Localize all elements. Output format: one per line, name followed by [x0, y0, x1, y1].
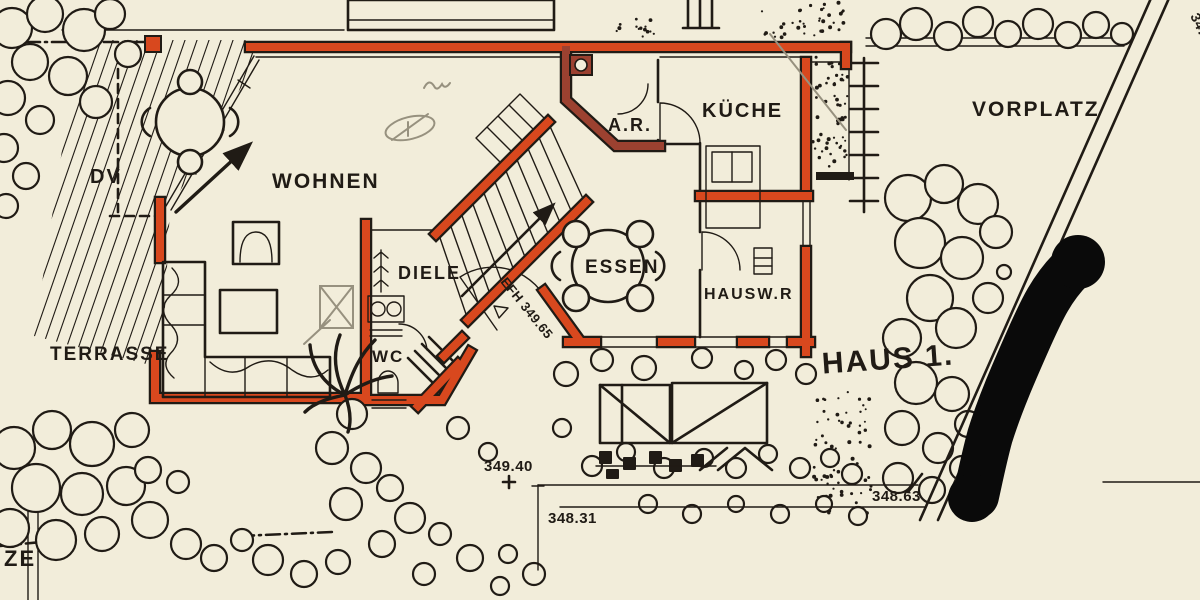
area-label-vorplatz: VORPLATZ — [972, 98, 1100, 121]
room-label-hauswr: HAUSW.R — [704, 286, 794, 303]
flue-fixture — [570, 55, 592, 75]
spot-elevation-a: 349.40 — [484, 458, 533, 475]
floor-plan-canvas: WOHNEN ESSEN KÜCHE A.R. HAUSW.R DIELE WC… — [0, 0, 1200, 600]
floor-plan-scan: WOHNEN ESSEN KÜCHE A.R. HAUSW.R DIELE WC… — [0, 0, 1200, 600]
spot-elevation-c: 348.63 — [872, 488, 921, 505]
room-label-wohnen: WOHNEN — [272, 170, 380, 193]
room-label-wc: WC — [372, 347, 404, 366]
room-label-diele: DIELE — [398, 263, 461, 283]
room-label-kueche: KÜCHE — [702, 99, 783, 122]
spot-elevation-b: 348.31 — [548, 510, 597, 527]
label-dv: DV — [90, 166, 122, 188]
area-label-terrasse: TERRASSE — [50, 344, 169, 365]
boundary-pier — [145, 36, 161, 52]
boundary-label-ze: ZE — [4, 546, 36, 571]
room-label-essen: ESSEN — [585, 257, 659, 278]
room-label-ar: A.R. — [608, 115, 652, 135]
